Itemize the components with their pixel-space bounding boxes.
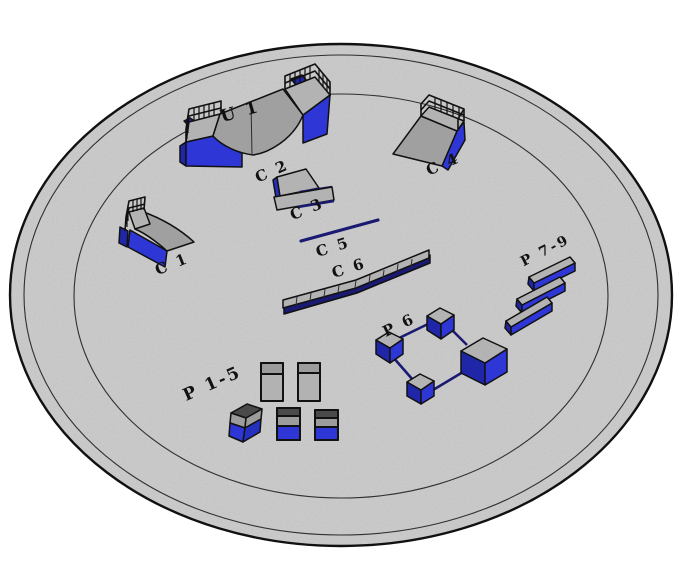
c1-base-side (119, 227, 128, 247)
p4-cube (277, 408, 300, 440)
p2-panel (298, 363, 320, 401)
skatepark-scene: U 1 C 1 C 2 C 3 C 4 C 5 C 6 P 6 P 7-9 P … (0, 0, 680, 579)
skatepark-diagram: U 1 C 1 C 2 C 3 C 4 C 5 C 6 P 6 P 7-9 P … (0, 0, 680, 579)
p5-cube (315, 410, 338, 440)
p1-panel (261, 363, 283, 401)
u1-left-base-side (180, 142, 186, 166)
